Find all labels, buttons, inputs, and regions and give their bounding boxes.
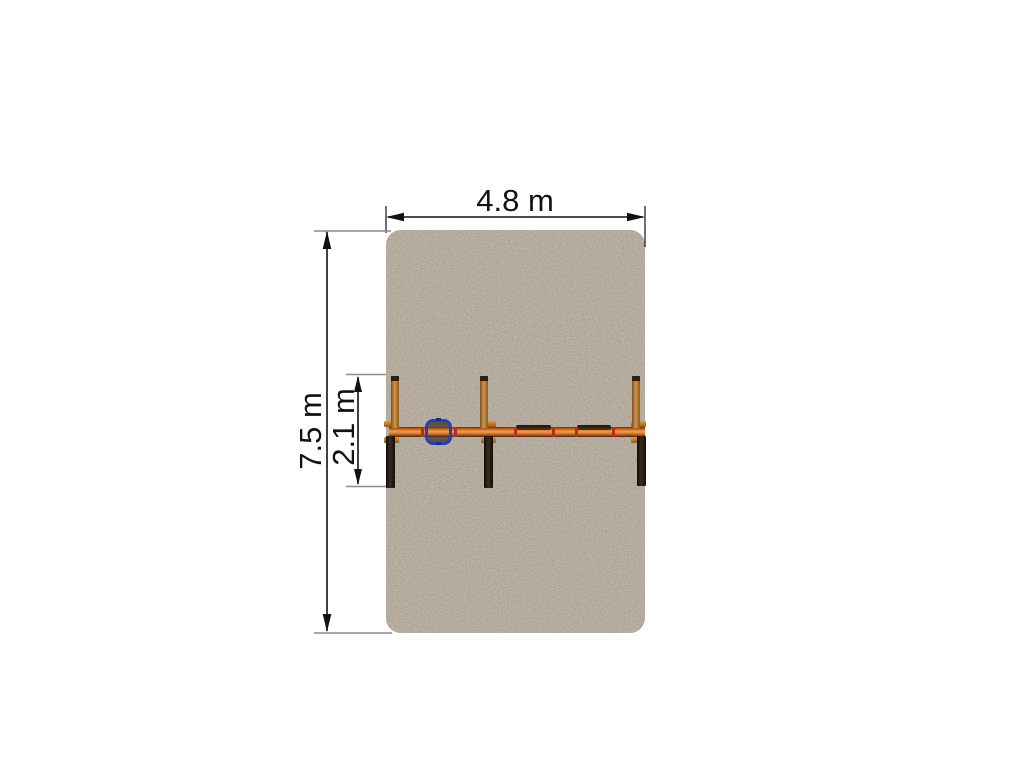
beam-joint-marker (552, 427, 555, 437)
right-upper-post (632, 376, 640, 428)
beam-rail-segment (516, 425, 551, 430)
middle-upper-post (480, 376, 488, 428)
seat-notch (436, 442, 441, 445)
seat-notch (436, 418, 441, 421)
beam-joint-marker (454, 427, 457, 437)
dimension-width-label: 4.8 m (455, 184, 575, 218)
beam-joint-marker (612, 427, 615, 437)
left-lower-post (386, 436, 395, 488)
dimension-depth-label: 2.1 m (327, 367, 361, 487)
beam-joint-marker (421, 427, 424, 437)
middle-lower-post (484, 436, 493, 488)
beam-joint-marker (575, 427, 578, 437)
left-upper-post (391, 376, 399, 428)
beam-rail-segment (577, 425, 611, 430)
plan-view-canvas: 4.8 m 7.5 m 2.1 m (0, 0, 1024, 768)
dimension-height-label: 7.5 m (294, 371, 328, 491)
beam-joint-marker (514, 427, 517, 437)
right-lower-post (637, 436, 646, 486)
